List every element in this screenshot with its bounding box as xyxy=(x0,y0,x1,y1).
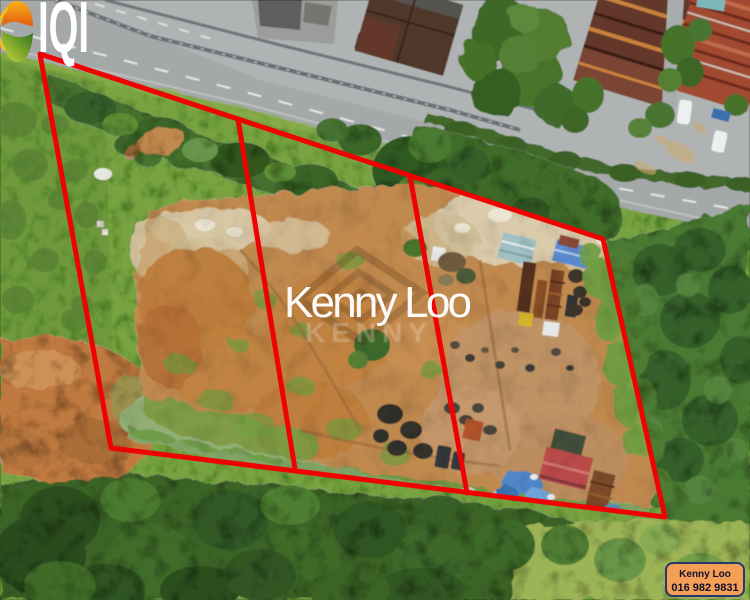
svg-text:IQI: IQI xyxy=(38,0,89,68)
svg-text:Kenny Loo: Kenny Loo xyxy=(284,278,472,327)
svg-text:Kenny Loo: Kenny Loo xyxy=(679,569,731,580)
svg-text:016 982 9831: 016 982 9831 xyxy=(671,582,738,594)
